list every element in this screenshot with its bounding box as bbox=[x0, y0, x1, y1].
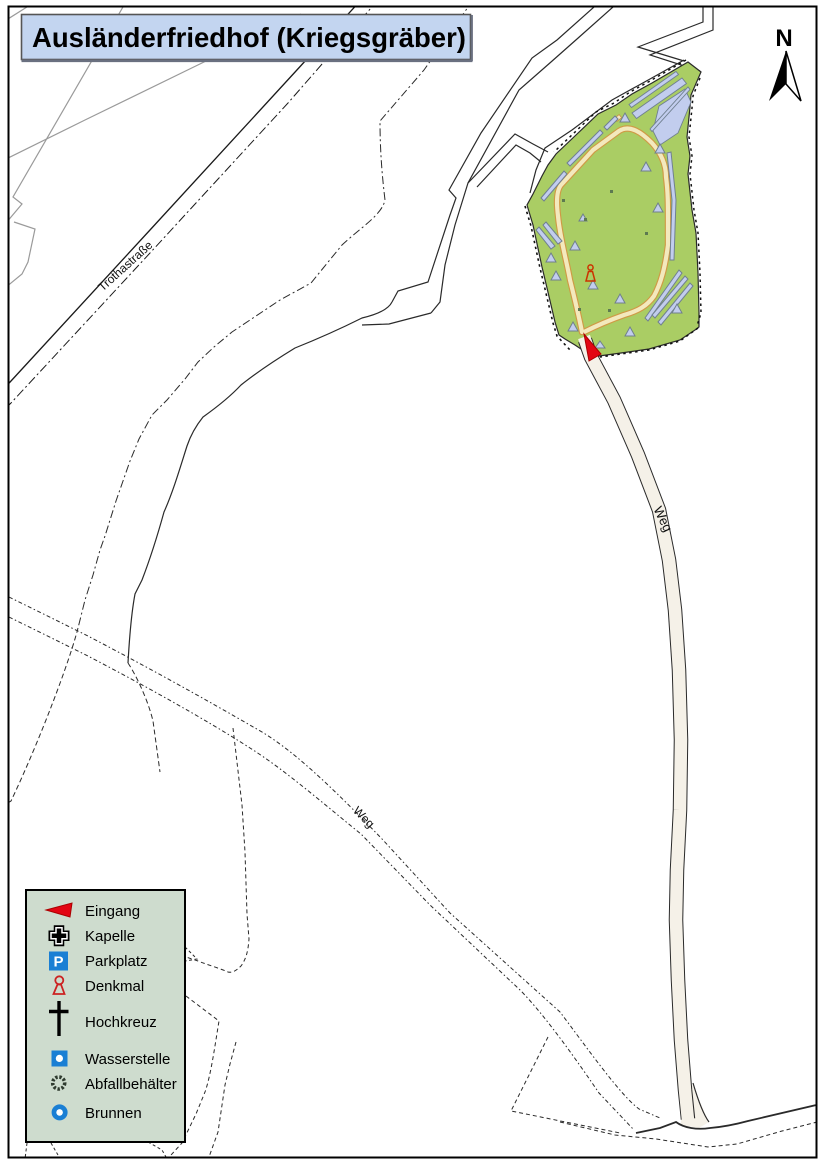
svg-text:Kapelle: Kapelle bbox=[85, 928, 135, 945]
svg-text:Wasserstelle: Wasserstelle bbox=[85, 1051, 170, 1068]
svg-text:Brunnen: Brunnen bbox=[85, 1105, 142, 1122]
svg-text:Eingang: Eingang bbox=[85, 903, 140, 920]
svg-text:Ausländerfriedhof (Kriegsgräbe: Ausländerfriedhof (Kriegsgräber) bbox=[32, 22, 466, 53]
svg-text:P: P bbox=[53, 954, 63, 971]
svg-text:Hochkreuz: Hochkreuz bbox=[85, 1014, 157, 1031]
svg-text:Abfallbehälter: Abfallbehälter bbox=[85, 1076, 177, 1093]
svg-text:Parkplatz: Parkplatz bbox=[85, 953, 148, 970]
svg-text:N: N bbox=[775, 25, 792, 52]
svg-text:Denkmal: Denkmal bbox=[85, 978, 144, 995]
